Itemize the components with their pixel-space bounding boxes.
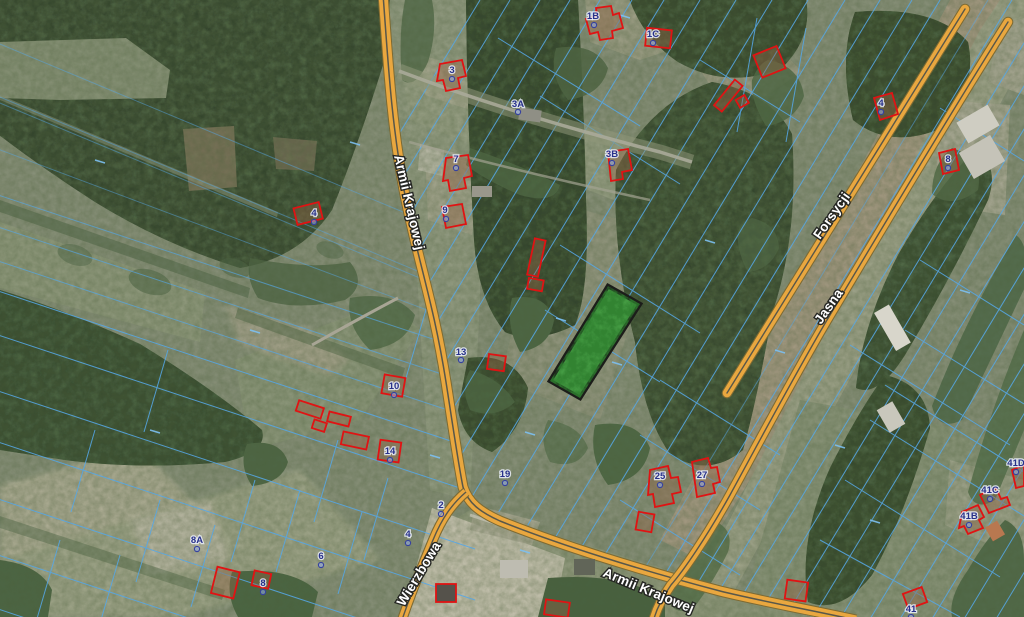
svg-text:3B: 3B	[606, 149, 618, 160]
svg-text:41B: 41B	[960, 511, 978, 522]
svg-text:19: 19	[500, 469, 511, 480]
svg-text:4: 4	[311, 208, 317, 219]
svg-text:1C: 1C	[647, 29, 659, 40]
svg-text:3A: 3A	[512, 99, 524, 110]
svg-text:2: 2	[438, 500, 443, 511]
svg-text:41: 41	[906, 604, 917, 615]
svg-text:13: 13	[456, 347, 467, 358]
svg-text:9: 9	[442, 205, 447, 216]
svg-text:41C: 41C	[981, 485, 999, 496]
svg-text:41D: 41D	[1007, 458, 1024, 469]
svg-text:3: 3	[449, 65, 454, 76]
svg-text:1B: 1B	[587, 11, 599, 22]
svg-text:27: 27	[697, 470, 708, 481]
svg-text:6: 6	[318, 551, 323, 562]
svg-text:25: 25	[655, 471, 666, 482]
svg-text:4: 4	[405, 529, 411, 540]
svg-text:14: 14	[385, 446, 396, 457]
svg-text:8A: 8A	[191, 535, 203, 546]
svg-text:4: 4	[878, 98, 884, 109]
svg-text:8: 8	[260, 578, 265, 589]
svg-text:10: 10	[389, 381, 400, 392]
svg-text:8: 8	[945, 154, 950, 165]
svg-text:7: 7	[453, 154, 458, 165]
